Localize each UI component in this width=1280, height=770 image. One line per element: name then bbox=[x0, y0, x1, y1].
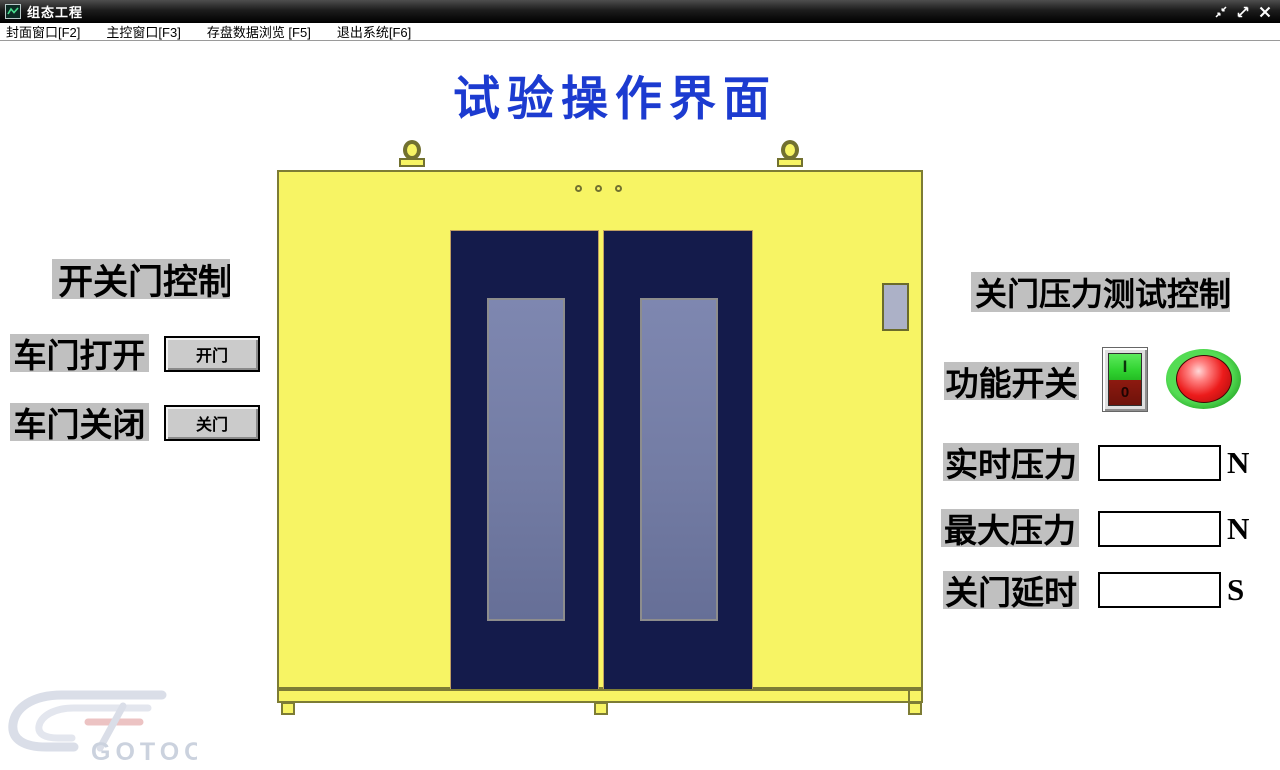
close-door-button[interactable]: 关门 bbox=[164, 405, 260, 441]
chamber-foot bbox=[594, 702, 608, 715]
menu-item-data-browse[interactable]: 存盘数据浏览 [F5] bbox=[207, 22, 311, 41]
chamber-foot bbox=[908, 702, 922, 715]
eyebolt-right-icon bbox=[776, 140, 804, 170]
rocker-switch-icon: I 0 bbox=[1108, 353, 1142, 406]
realtime-pressure-input[interactable] bbox=[1098, 445, 1221, 481]
open-door-button[interactable]: 开门 bbox=[164, 336, 260, 372]
function-switch-label: 功能开关 bbox=[944, 362, 1079, 400]
door-open-label: 车门打开 bbox=[10, 334, 149, 372]
realtime-pressure-label: 实时压力 bbox=[943, 443, 1079, 481]
minimize-icon[interactable] bbox=[1214, 5, 1228, 19]
door-window-left bbox=[487, 298, 565, 621]
status-indicator-lamp bbox=[1166, 349, 1241, 409]
chamber-door-right bbox=[603, 230, 753, 690]
close-icon[interactable] bbox=[1258, 5, 1272, 19]
test-chamber-body bbox=[277, 170, 923, 689]
chamber-door-left bbox=[450, 230, 599, 690]
menu-bar: 封面窗口[F2] 主控窗口[F3] 存盘数据浏览 [F5] 退出系统[F6] bbox=[0, 23, 1280, 41]
screw-dot bbox=[575, 185, 582, 192]
max-pressure-input[interactable] bbox=[1098, 511, 1221, 547]
menu-item-cover-window[interactable]: 封面窗口[F2] bbox=[6, 22, 80, 41]
gotoo-watermark-text: GOTOO bbox=[91, 738, 197, 766]
app-logo-icon bbox=[5, 4, 21, 19]
door-control-section-title: 开关门控制 bbox=[52, 259, 230, 299]
menu-item-main-window[interactable]: 主控窗口[F3] bbox=[106, 22, 180, 41]
close-delay-input[interactable] bbox=[1098, 572, 1221, 608]
switch-on-mark: I bbox=[1109, 354, 1141, 380]
window-title: 组态工程 bbox=[27, 2, 83, 21]
close-delay-label: 关门延时 bbox=[943, 571, 1079, 609]
title-bar: 组态工程 bbox=[0, 0, 1280, 23]
function-switch-toggle[interactable]: I 0 bbox=[1102, 347, 1148, 412]
gotoo-watermark: GOTOO bbox=[2, 686, 197, 768]
chamber-foot bbox=[281, 702, 295, 715]
realtime-pressure-unit: N bbox=[1227, 444, 1257, 482]
close-delay-unit: S bbox=[1227, 571, 1257, 609]
door-close-label: 车门关闭 bbox=[10, 403, 149, 441]
maximize-icon[interactable] bbox=[1236, 5, 1250, 19]
pressure-test-section-title: 关门压力测试控制 bbox=[971, 272, 1230, 312]
page-title: 试验操作界面 bbox=[420, 60, 810, 129]
screw-dot bbox=[615, 185, 622, 192]
screw-dot bbox=[595, 185, 602, 192]
eyebolt-left-icon bbox=[398, 140, 426, 170]
menu-item-exit-system[interactable]: 退出系统[F6] bbox=[337, 22, 411, 41]
door-window-right bbox=[640, 298, 718, 621]
chamber-base-rail bbox=[277, 689, 923, 703]
rail-notch bbox=[908, 691, 910, 701]
lamp-red-core bbox=[1176, 355, 1232, 403]
max-pressure-unit: N bbox=[1227, 510, 1257, 548]
max-pressure-label: 最大压力 bbox=[941, 509, 1079, 547]
chamber-side-window bbox=[882, 283, 909, 331]
switch-off-mark: 0 bbox=[1109, 380, 1141, 406]
window-controls bbox=[1214, 5, 1275, 19]
